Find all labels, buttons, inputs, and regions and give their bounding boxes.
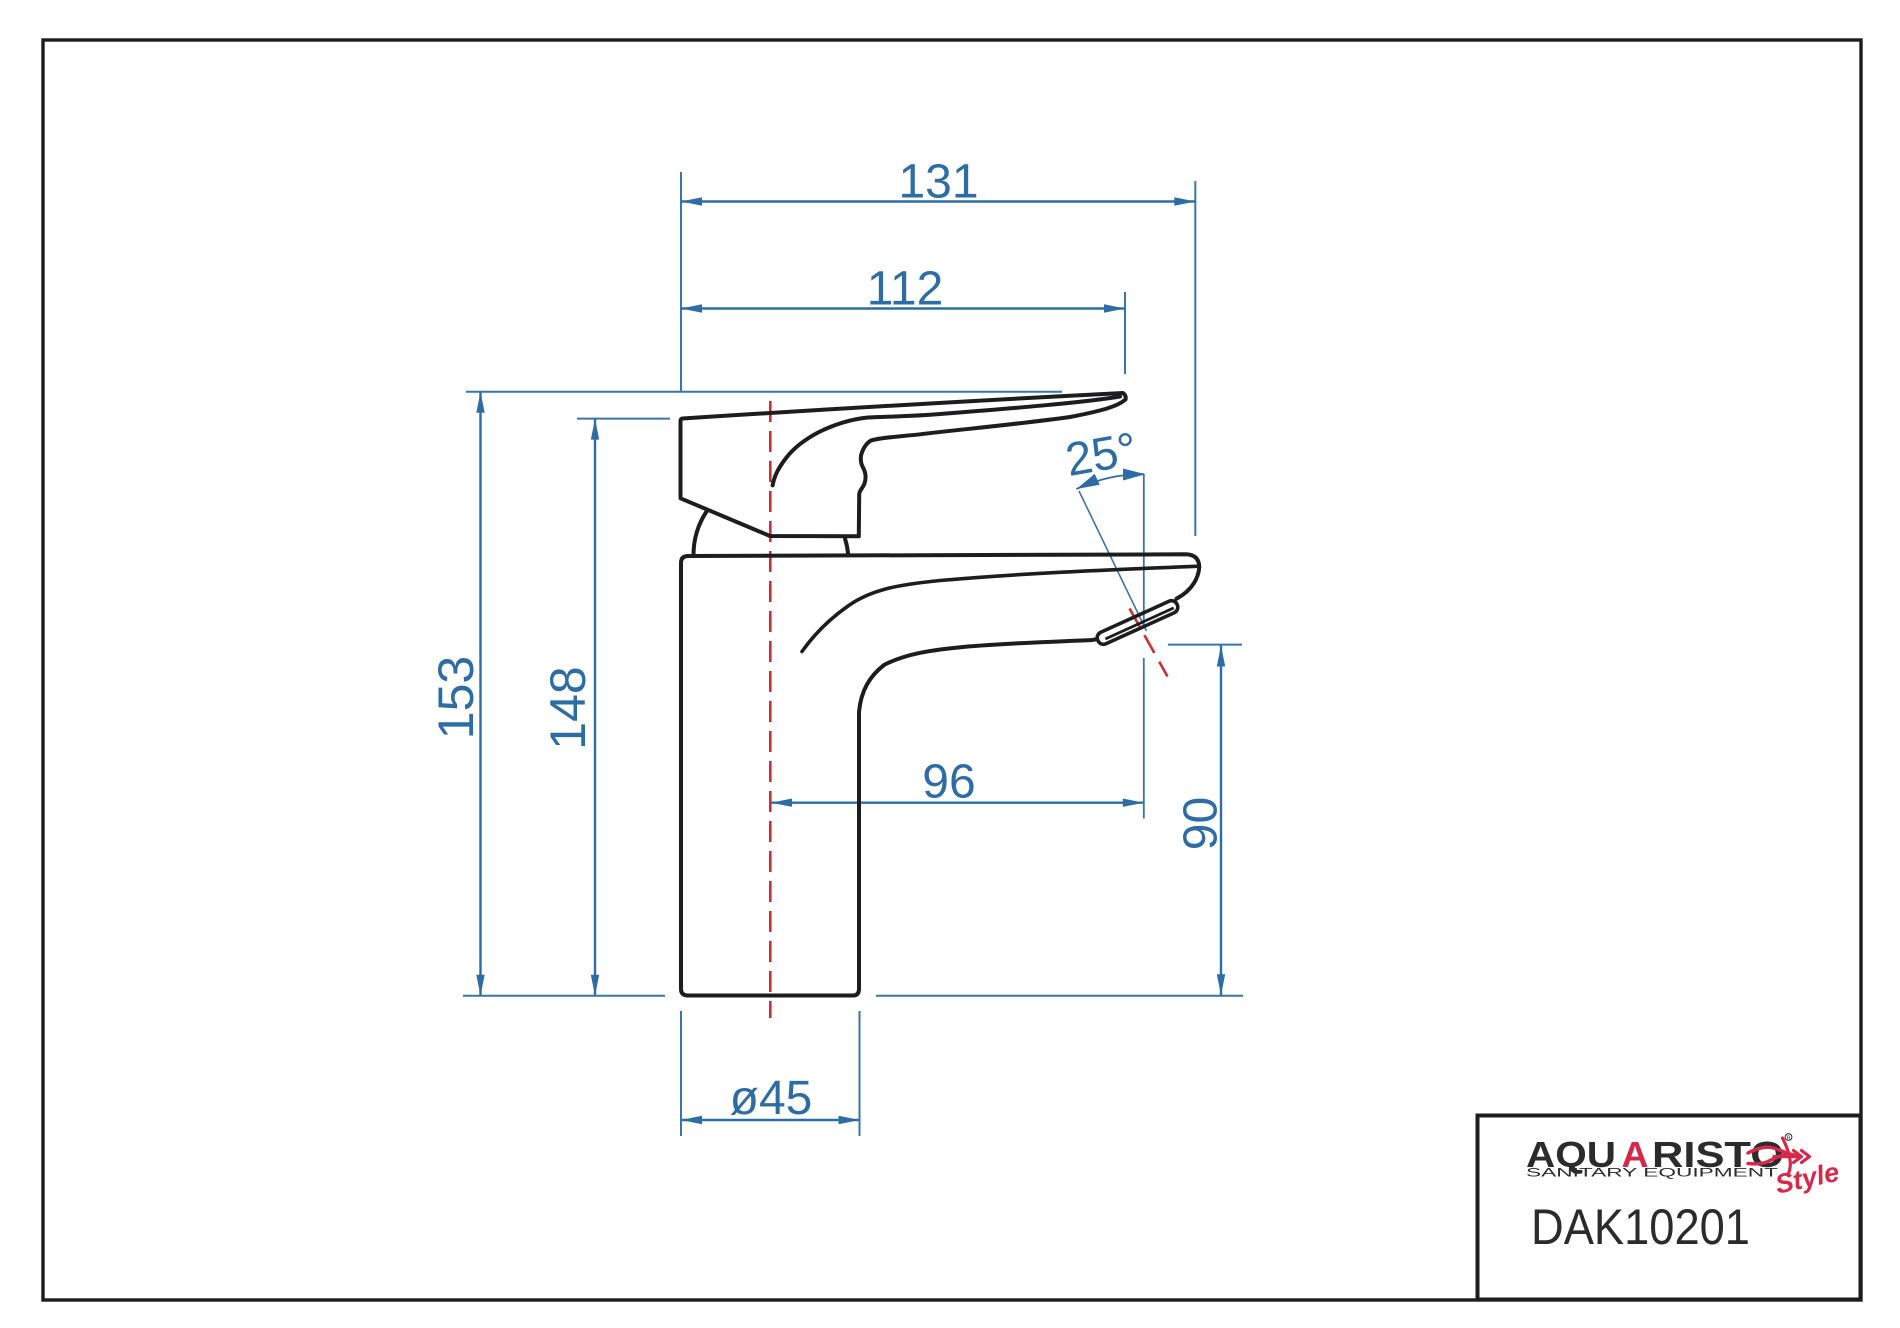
svg-text:R: R: [1787, 1135, 1791, 1141]
svg-text:ø45: ø45: [730, 1072, 813, 1125]
svg-text:DAK10201: DAK10201: [1531, 1199, 1750, 1255]
svg-text:90: 90: [1175, 797, 1228, 850]
svg-text:SANITARY EQUIPMENT: SANITARY EQUIPMENT: [1526, 1166, 1779, 1180]
svg-text:131: 131: [898, 156, 978, 209]
svg-text:153: 153: [428, 656, 484, 739]
svg-text:148: 148: [540, 666, 596, 749]
svg-text:96: 96: [922, 756, 975, 809]
svg-text:112: 112: [867, 263, 944, 316]
